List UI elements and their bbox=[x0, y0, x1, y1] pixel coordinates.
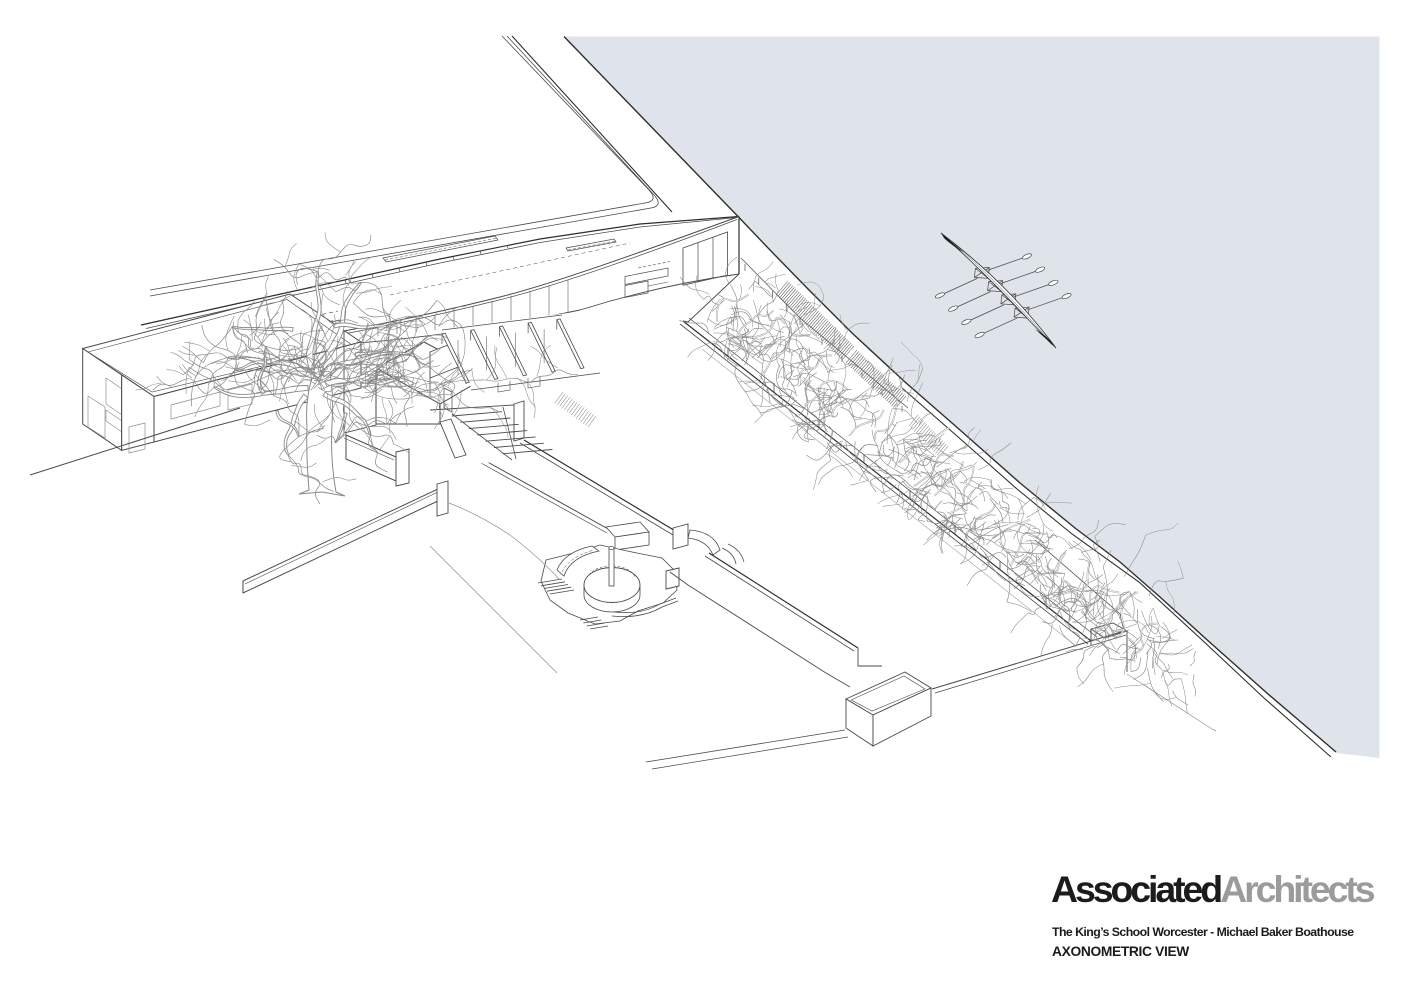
svg-text:The King’s School Worcester -: The King’s School Worcester - Michael Ba… bbox=[1052, 925, 1354, 939]
svg-text:AssociatedArchitects: AssociatedArchitects bbox=[1051, 868, 1375, 910]
svg-text:AXONOMETRIC VIEW: AXONOMETRIC VIEW bbox=[1052, 944, 1190, 959]
